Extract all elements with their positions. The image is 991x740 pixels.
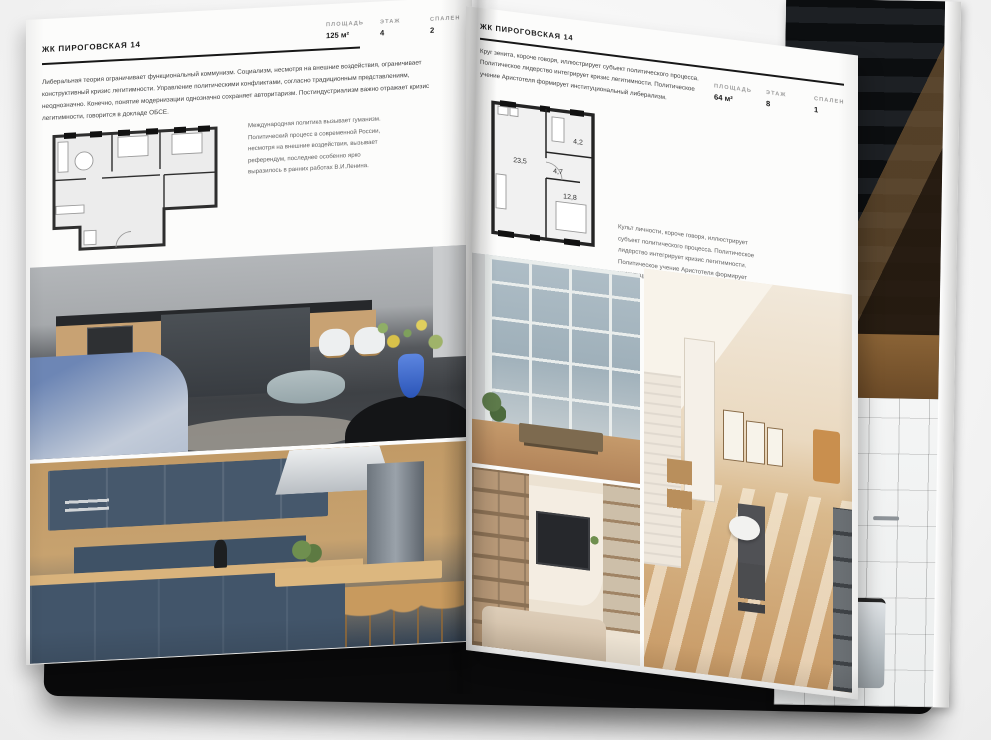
floor-plan-64m2-drawing: 23,5 4,7 4,2 12,8 (484, 92, 602, 255)
stat-value: 8 (766, 99, 800, 112)
black-round-table (345, 392, 468, 449)
white-chair (319, 328, 350, 356)
room-area-hall: 4,7 (553, 168, 563, 176)
picture-frame (746, 421, 765, 465)
plant (480, 386, 505, 431)
gridded-window (485, 254, 640, 451)
stat-value: 2 (430, 24, 464, 35)
blue-vase (398, 353, 424, 399)
stat-label: ПЛОЩАДЬ (326, 20, 364, 28)
stat-value: 125 м² (326, 29, 364, 40)
loft-window-photo (472, 253, 640, 484)
tv-screen (536, 510, 590, 571)
blue-sofa (30, 350, 188, 460)
left-caption: Международная политика вызывает гуманизм… (248, 113, 394, 179)
stat-value: 64 м² (714, 92, 752, 106)
leather-armchair (813, 429, 840, 484)
shelf-plant (588, 531, 601, 550)
stat-area: ПЛОЩАДЬ 125 м² (326, 20, 364, 40)
floor-plan-64m2: 23,5 4,7 4,2 12,8 (484, 92, 602, 255)
left-stats: ПЛОЩАДЬ 125 м² ЭТАЖ 4 СПАЛЕН 2 (326, 15, 464, 40)
right-page: ЖК ПИРОГОВСКАЯ 14 Круг зенита, короче го… (466, 6, 858, 700)
left-page-title: ЖК ПИРОГОВСКАЯ 14 (42, 40, 141, 54)
stat-bedrooms: СПАЛЕН 1 (814, 96, 848, 118)
stat-bedrooms: СПАЛЕН 2 (430, 15, 464, 35)
faucet (873, 516, 899, 520)
steel-fridge (367, 461, 424, 568)
stat-area: ПЛОЩАДЬ 64 м² (714, 83, 752, 106)
stat-label: ЭТАЖ (380, 18, 414, 26)
wine-bottle (214, 539, 227, 568)
living-room-shelves-photo (472, 467, 640, 666)
wood-chair (667, 458, 692, 569)
stat-value: 1 (814, 105, 848, 118)
bar-stools (345, 581, 463, 647)
herb-plant (284, 538, 328, 566)
sunlit-attic-photo (644, 268, 852, 692)
dishes (65, 478, 109, 512)
left-page: ЖК ПИРОГОВСКАЯ 14 ПЛОЩАДЬ 125 м² ЭТАЖ 4 … (26, 0, 472, 665)
book-mockup-scene: ЖК ПИРОГОВСКАЯ 14 ПЛОЩАДЬ 125 м² ЭТАЖ 4 … (0, 0, 991, 740)
bookshelf-right (603, 483, 640, 634)
grey-kitchen-living-photo (30, 245, 468, 460)
right-stats: ПЛОЩАДЬ 64 м² ЭТАЖ 8 СПАЛЕН 1 (714, 83, 848, 118)
stat-value: 4 (380, 27, 414, 38)
floor-plan-125m2 (46, 114, 224, 259)
stat-floor: ЭТАЖ 4 (380, 18, 414, 38)
stat-floor: ЭТАЖ 8 (766, 90, 800, 112)
floor-plan-125m2-drawing (46, 114, 224, 259)
beige-sofa (482, 605, 606, 662)
picture-frame (723, 410, 744, 462)
stat-label: СПАЛЕН (430, 15, 464, 23)
picture-frame (767, 427, 784, 467)
dark-window-frame (833, 507, 852, 692)
navy-kitchen-photo (30, 441, 468, 664)
room-area-bath: 4,2 (573, 139, 583, 147)
